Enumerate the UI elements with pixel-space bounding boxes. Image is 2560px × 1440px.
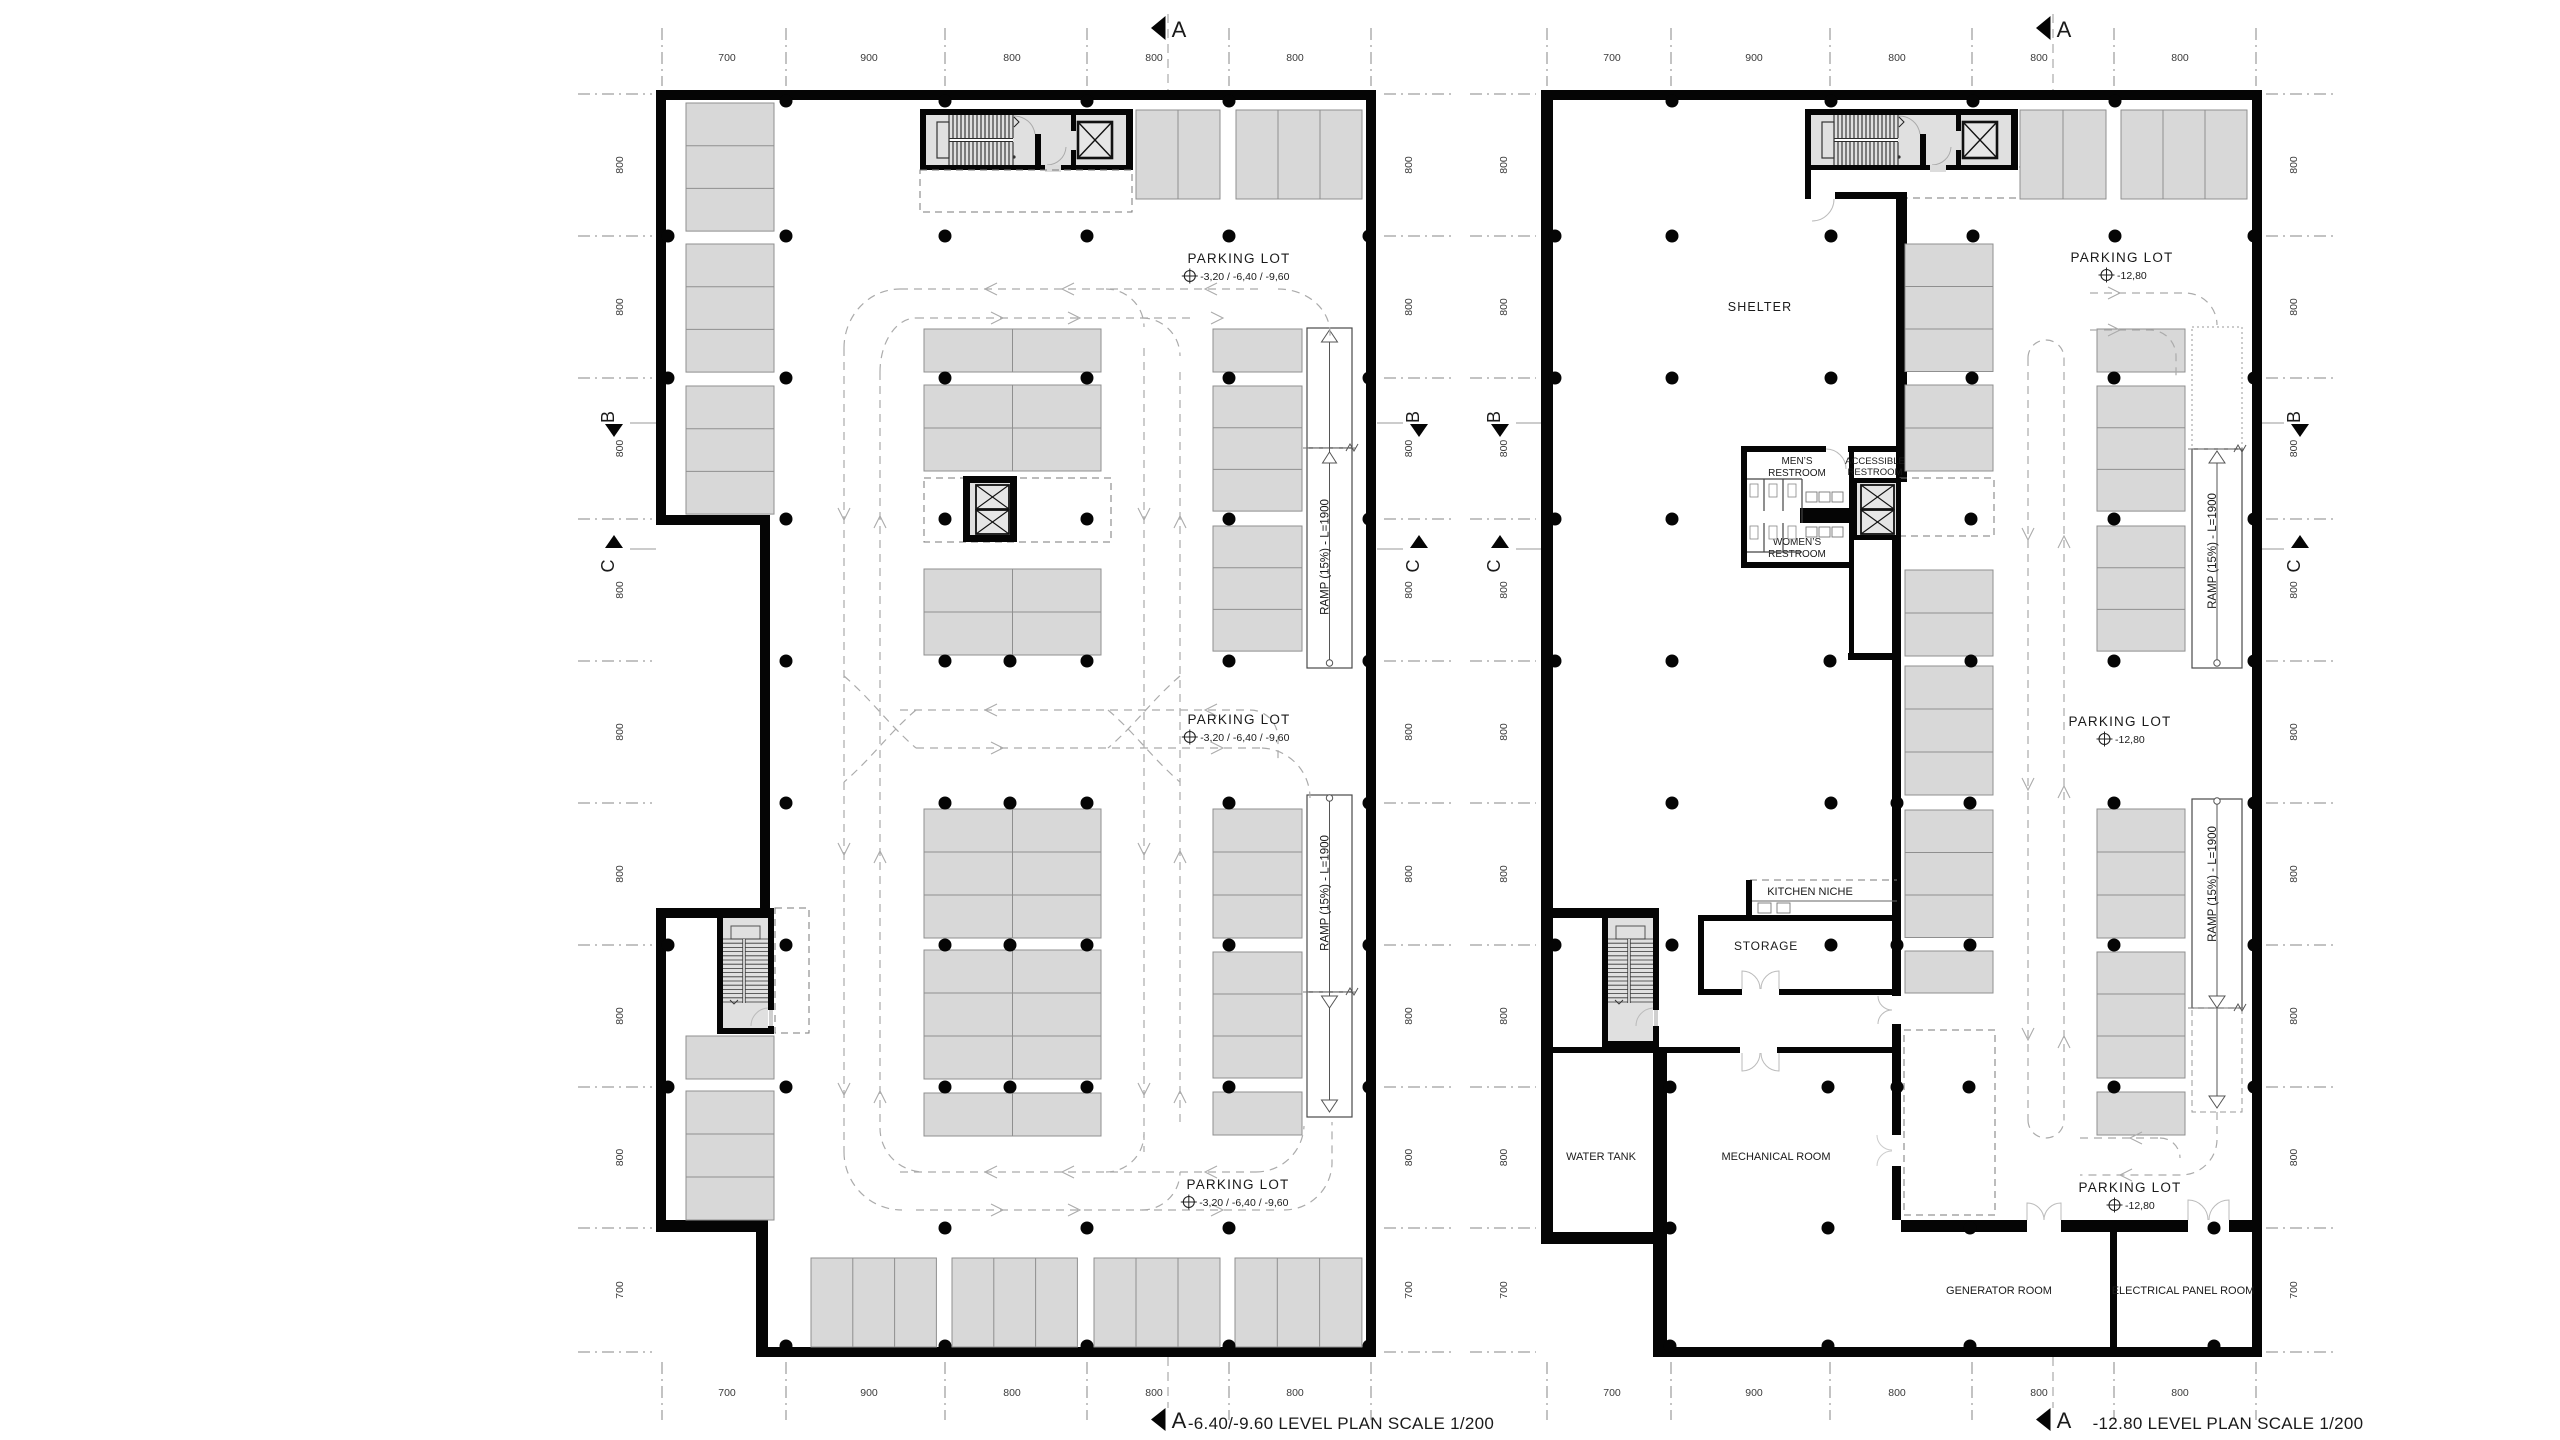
- svg-text:C: C: [2284, 560, 2304, 573]
- svg-text:800: 800: [1403, 865, 1415, 883]
- svg-text:-3,20 / -6,40 / -9,60: -3,20 / -6,40 / -9,60: [1200, 732, 1289, 744]
- svg-text:800: 800: [1888, 52, 1906, 64]
- svg-text:900: 900: [860, 52, 878, 64]
- svg-text:800: 800: [1498, 723, 1510, 741]
- svg-text:C: C: [1484, 560, 1504, 573]
- svg-text:WOMEN’S: WOMEN’S: [1773, 537, 1822, 548]
- svg-text:800: 800: [2288, 1007, 2300, 1025]
- svg-text:-3,20 / -6,40 / -9,60: -3,20 / -6,40 / -9,60: [1200, 271, 1289, 283]
- svg-text:800: 800: [614, 440, 626, 458]
- svg-text:RESTROOM: RESTROOM: [1768, 468, 1826, 479]
- svg-text:800: 800: [2288, 865, 2300, 883]
- svg-text:RAMP (15%) - L=1900: RAMP (15%) - L=1900: [1320, 499, 1332, 615]
- svg-text:800: 800: [1003, 1387, 1021, 1399]
- svg-text:800: 800: [1498, 1007, 1510, 1025]
- svg-text:800: 800: [2288, 440, 2300, 458]
- svg-text:700: 700: [2288, 1281, 2300, 1299]
- svg-text:800: 800: [2288, 156, 2300, 174]
- svg-text:RESTROOM: RESTROOM: [1768, 549, 1826, 560]
- svg-text:800: 800: [2288, 1149, 2300, 1167]
- svg-text:ACCESSIBLE: ACCESSIBLE: [1845, 456, 1905, 467]
- svg-text:800: 800: [614, 156, 626, 174]
- svg-text:800: 800: [1145, 1387, 1163, 1399]
- svg-text:800: 800: [2288, 298, 2300, 316]
- svg-text:800: 800: [1286, 1387, 1304, 1399]
- svg-text:700: 700: [718, 1387, 736, 1399]
- svg-text:800: 800: [1403, 298, 1415, 316]
- svg-text:800: 800: [1498, 440, 1510, 458]
- svg-text:800: 800: [1286, 52, 1304, 64]
- svg-text:800: 800: [2030, 52, 2048, 64]
- svg-text:800: 800: [1403, 440, 1415, 458]
- svg-text:-3,20 / -6,40 / -9,60: -3,20 / -6,40 / -9,60: [1199, 1197, 1288, 1209]
- svg-text:PARKING LOT: PARKING LOT: [2079, 1180, 2182, 1195]
- svg-text:900: 900: [1745, 52, 1763, 64]
- svg-text:900: 900: [860, 1387, 878, 1399]
- svg-text:800: 800: [1498, 298, 1510, 316]
- svg-text:C: C: [598, 560, 618, 573]
- svg-text:800: 800: [614, 298, 626, 316]
- svg-text:PARKING LOT: PARKING LOT: [1188, 712, 1291, 727]
- svg-text:PARKING LOT: PARKING LOT: [2071, 250, 2174, 265]
- svg-text:800: 800: [1403, 581, 1415, 599]
- svg-text:GENERATOR ROOM: GENERATOR ROOM: [1946, 1285, 2052, 1297]
- svg-text:RAMP (15%) - L=1900: RAMP (15%) - L=1900: [2207, 826, 2219, 942]
- svg-text:-12,80: -12,80: [2117, 270, 2147, 282]
- svg-text:800: 800: [1403, 1149, 1415, 1167]
- svg-text:800: 800: [1498, 1149, 1510, 1167]
- svg-text:800: 800: [2171, 1387, 2189, 1399]
- svg-text:A: A: [2057, 1408, 2072, 1433]
- svg-text:STORAGE: STORAGE: [1734, 939, 1798, 953]
- svg-text:700: 700: [1498, 1281, 1510, 1299]
- svg-text:700: 700: [614, 1281, 626, 1299]
- svg-text:SHELTER: SHELTER: [1728, 300, 1792, 314]
- svg-text:B: B: [1403, 411, 1423, 423]
- svg-text:800: 800: [1498, 156, 1510, 174]
- svg-text:800: 800: [1498, 865, 1510, 883]
- svg-text:800: 800: [1003, 52, 1021, 64]
- svg-text:800: 800: [1498, 581, 1510, 599]
- svg-text:WATER TANK: WATER TANK: [1566, 1151, 1637, 1163]
- svg-text:800: 800: [614, 581, 626, 599]
- svg-text:B: B: [598, 411, 618, 423]
- svg-text:800: 800: [614, 1007, 626, 1025]
- svg-text:-12,80: -12,80: [2115, 734, 2145, 746]
- svg-text:-12.80 LEVEL PLAN SCALE 1/200: -12.80 LEVEL PLAN SCALE 1/200: [2093, 1414, 2364, 1433]
- svg-text:800: 800: [614, 865, 626, 883]
- svg-text:RESTROOM: RESTROOM: [1848, 467, 1903, 478]
- svg-text:800: 800: [1403, 1007, 1415, 1025]
- svg-text:PARKING LOT: PARKING LOT: [1188, 251, 1291, 266]
- svg-text:800: 800: [1403, 156, 1415, 174]
- svg-text:A: A: [1172, 17, 1187, 42]
- svg-text:B: B: [2284, 411, 2304, 423]
- svg-text:RAMP (15%) - L=1900: RAMP (15%) - L=1900: [1320, 835, 1332, 951]
- svg-text:C: C: [1403, 560, 1423, 573]
- svg-text:800: 800: [2288, 581, 2300, 599]
- svg-text:700: 700: [718, 52, 736, 64]
- svg-text:RAMP (15%) - L=1900: RAMP (15%) - L=1900: [2207, 493, 2219, 609]
- svg-text:700: 700: [1603, 1387, 1621, 1399]
- svg-text:PARKING LOT: PARKING LOT: [1187, 1177, 1290, 1192]
- svg-text:PARKING LOT: PARKING LOT: [2069, 714, 2172, 729]
- svg-text:800: 800: [614, 723, 626, 741]
- svg-text:800: 800: [614, 1149, 626, 1167]
- svg-text:800: 800: [1888, 1387, 1906, 1399]
- svg-text:-6.40/-9.60 LEVEL PLAN SCALE 1: -6.40/-9.60 LEVEL PLAN SCALE 1/200: [1188, 1414, 1494, 1433]
- svg-text:ELECTRICAL PANEL ROOM: ELECTRICAL PANEL ROOM: [2112, 1285, 2255, 1297]
- svg-text:800: 800: [1403, 723, 1415, 741]
- svg-text:A: A: [1172, 1408, 1187, 1433]
- svg-text:-12,80: -12,80: [2125, 1200, 2155, 1212]
- svg-text:A: A: [2057, 17, 2072, 42]
- svg-text:MECHANICAL ROOM: MECHANICAL ROOM: [1722, 1151, 1831, 1163]
- svg-text:800: 800: [1145, 52, 1163, 64]
- svg-text:MEN’S: MEN’S: [1781, 456, 1812, 467]
- svg-text:700: 700: [1403, 1281, 1415, 1299]
- svg-text:800: 800: [2171, 52, 2189, 64]
- svg-text:700: 700: [1603, 52, 1621, 64]
- svg-text:800: 800: [2288, 723, 2300, 741]
- svg-text:900: 900: [1745, 1387, 1763, 1399]
- svg-text:KITCHEN NICHE: KITCHEN NICHE: [1767, 886, 1853, 898]
- svg-text:800: 800: [2030, 1387, 2048, 1399]
- svg-text:B: B: [1484, 411, 1504, 423]
